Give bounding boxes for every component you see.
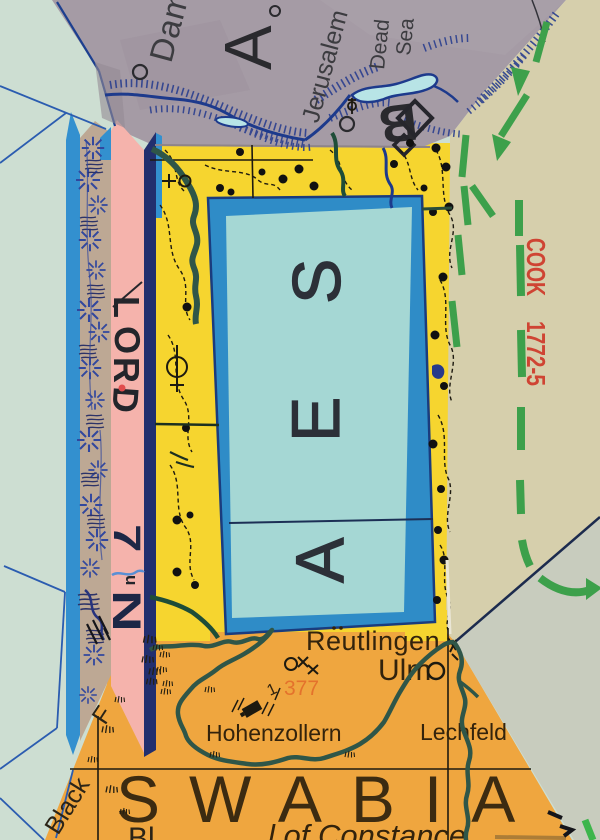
svg-text:D: D [104,385,147,414]
svg-text:L: L [106,296,147,318]
svg-text:377: 377 [284,677,319,700]
svg-text:u: u [122,575,141,585]
svg-text:E: E [278,397,354,442]
svg-text:S: S [279,259,355,304]
svg-text:Bl: Bl [128,822,155,840]
svg-text:A: A [282,537,358,583]
svg-text:l of Constance: l of Constance [268,818,466,840]
svg-text:N: N [104,590,149,632]
svg-text:Hohenzollern: Hohenzollern [206,720,342,746]
svg-text:O: O [106,325,149,356]
svg-text:Reutlingen: Reutlingen [306,626,440,656]
svg-text:7: 7 [106,524,149,553]
svg-text:A: A [211,25,286,70]
svg-text:1772-5: 1772-5 [521,321,551,386]
svg-text:COOK: COOK [521,238,551,296]
svg-text:Sea: Sea [392,17,419,57]
svg-text:R: R [106,357,147,383]
